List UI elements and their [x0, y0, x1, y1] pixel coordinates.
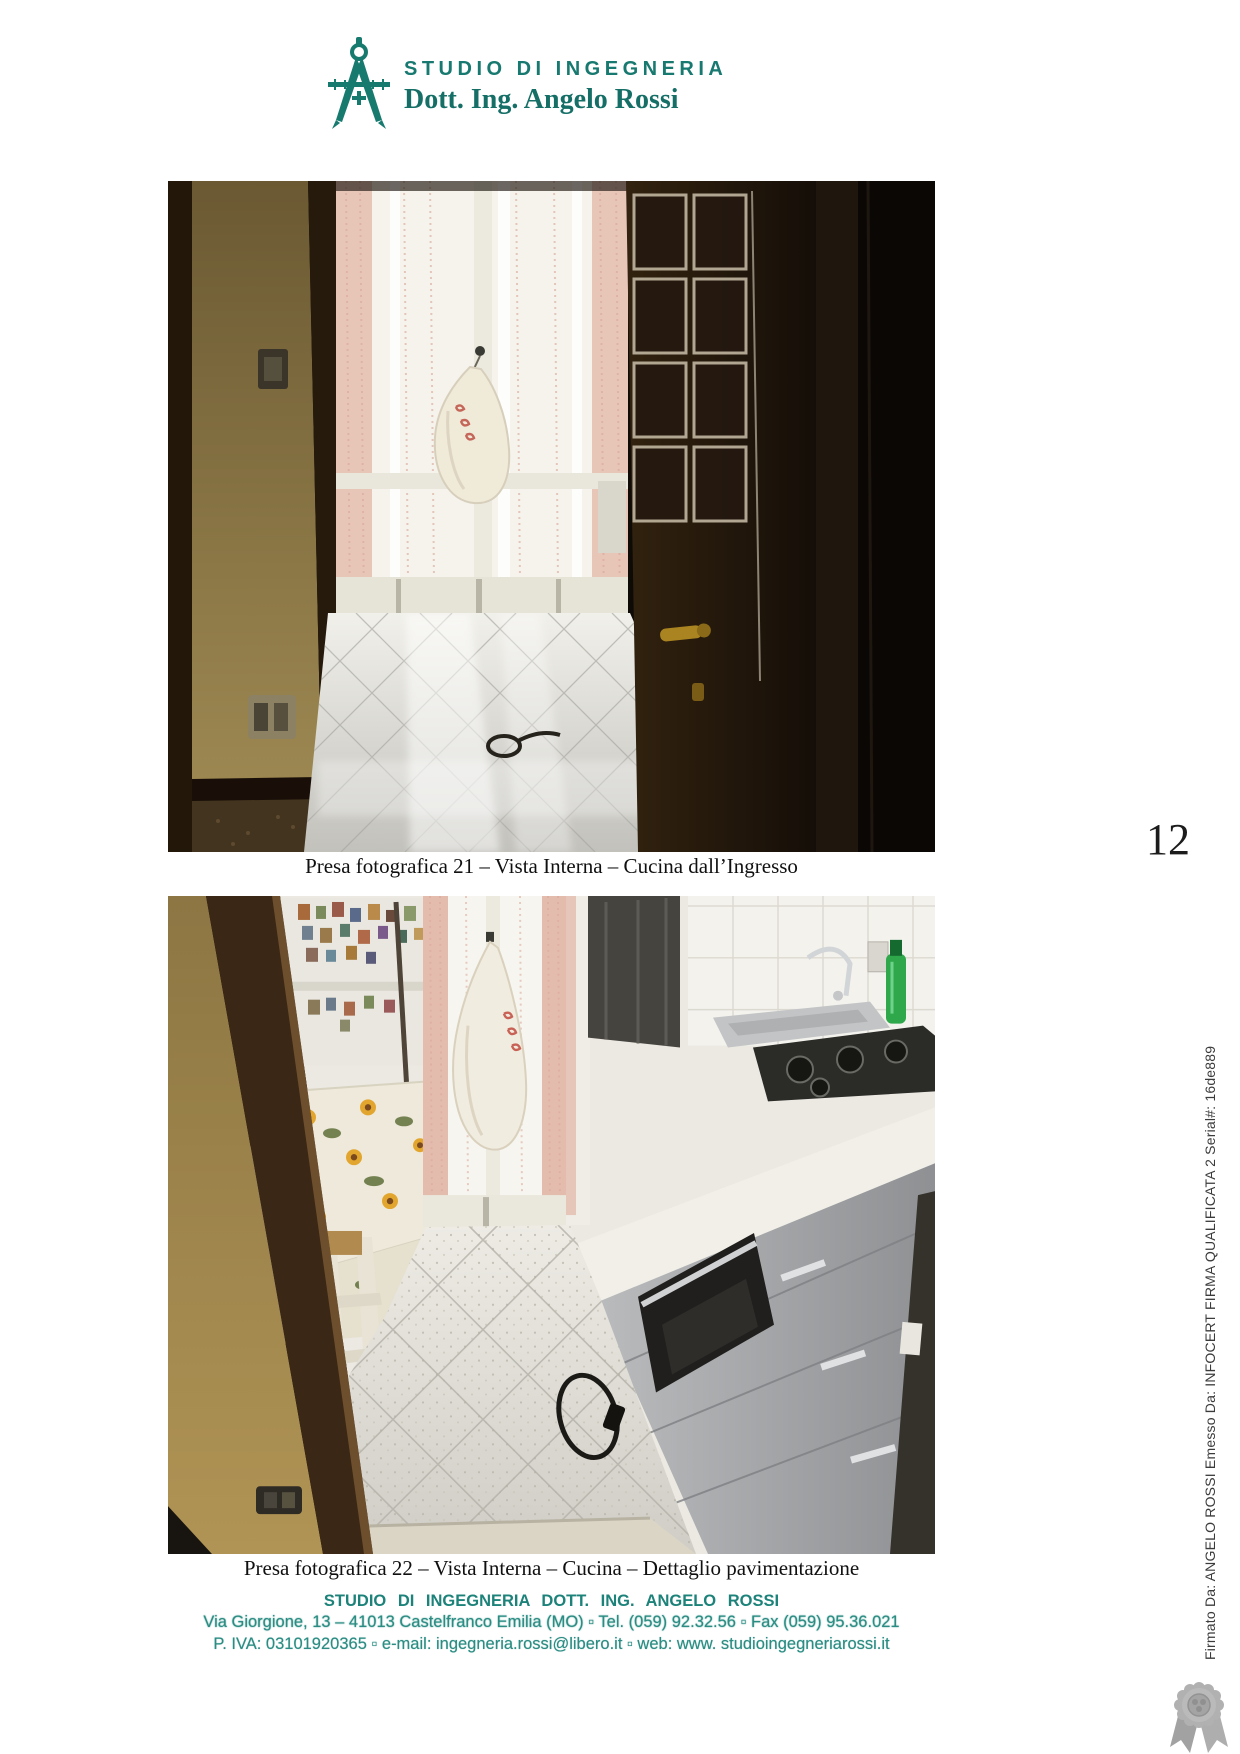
footer-studio-line: STUDIO DI INGEGNERIA DOTT. ING. ANGELO R… — [168, 1592, 935, 1611]
footer-address-line: Via Giorgione, 13 – 41013 Castelfranco E… — [168, 1613, 935, 1632]
photo-21-caption: Presa fotografica 21 – Vista Interna – C… — [168, 854, 935, 879]
rosette-seal-icon — [1162, 1680, 1236, 1754]
photo-22-image — [168, 896, 935, 1554]
footer-contacts-line: P. IVA: 03101920365 ▫ e-mail: ingegneria… — [168, 1635, 935, 1654]
drafting-compass-icon — [326, 36, 392, 130]
photo-22-caption: Presa fotografica 22 – Vista Interna – C… — [168, 1556, 935, 1581]
page-number: 12 — [1146, 814, 1226, 865]
studio-title: STUDIO DI INGEGNERIA — [404, 58, 727, 81]
photo-22 — [168, 896, 935, 1554]
photo-21-image — [168, 181, 935, 852]
photo-21 — [168, 181, 935, 852]
document-page: STUDIO DI INGEGNERIA Dott. Ing. Angelo R… — [0, 0, 1240, 1754]
engineer-name: Dott. Ing. Angelo Rossi — [404, 84, 679, 116]
digital-signature-text: Firmato Da: ANGELO ROSSI Emesso Da: INFO… — [1202, 1046, 1218, 1660]
